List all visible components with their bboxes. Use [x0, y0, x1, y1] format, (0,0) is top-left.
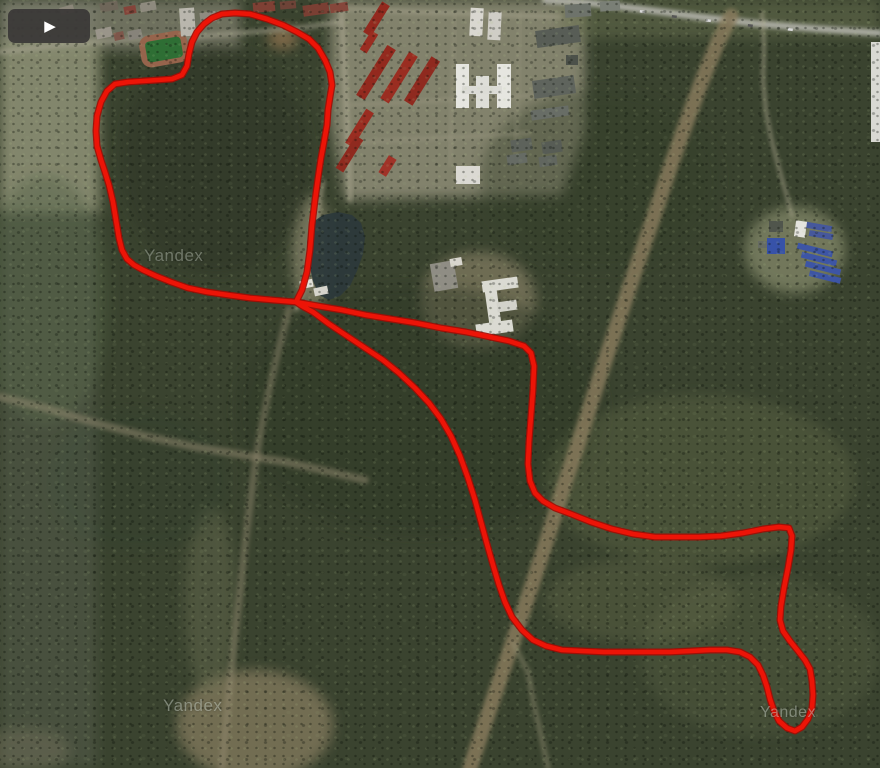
playback-button[interactable]: ▶ — [8, 9, 90, 43]
gps-track-line — [296, 302, 813, 731]
play-icon: ▶ — [44, 19, 56, 34]
gps-track-edge — [296, 302, 813, 731]
gps-track-edge — [96, 13, 332, 302]
gps-track — [96, 13, 813, 731]
track-layer — [0, 0, 880, 768]
yandex-map-canvas[interactable]: YandexYandexYandex ▶ — [0, 0, 880, 768]
